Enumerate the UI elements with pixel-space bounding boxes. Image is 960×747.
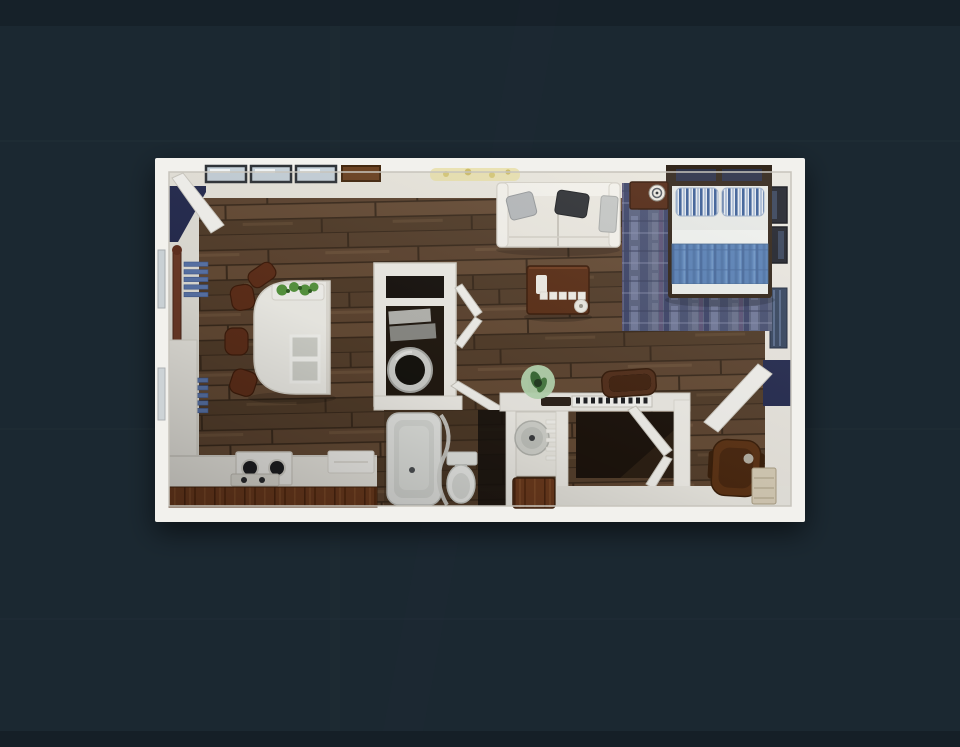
window: [251, 166, 291, 182]
striped-pillow: [676, 188, 718, 216]
sleeping-area: [622, 165, 775, 331]
throw-pillow-dark: [554, 190, 589, 219]
inset-tray: [291, 336, 319, 358]
inset-tray: [291, 360, 319, 382]
upper-shelf-dark: [386, 276, 444, 298]
towel-slat: [546, 429, 556, 433]
coaster: [559, 292, 567, 300]
backdrop-texture-line: [0, 140, 960, 142]
stove: [231, 452, 292, 486]
drain: [409, 467, 415, 473]
sofa-arm: [497, 183, 508, 247]
window: [206, 166, 246, 182]
towel-slat: [546, 438, 556, 442]
apartment-plan: [155, 158, 805, 522]
side-counter: [169, 340, 197, 456]
striped-pillow: [722, 188, 764, 216]
stool: [225, 328, 248, 355]
arm-throw: [599, 195, 618, 232]
backdrop-top-shade: [0, 0, 960, 26]
stove-tray: [231, 474, 279, 486]
backdrop-bottom-shade: [0, 731, 960, 747]
stool: [229, 283, 256, 312]
coffee-table: [527, 266, 589, 314]
shelf-decor-flowers: [430, 168, 520, 181]
entry-doorway-dark: [763, 360, 791, 406]
planter-with-herbs: [272, 282, 324, 300]
screenshot-canvas: [0, 0, 960, 747]
window: [296, 166, 336, 182]
backdrop-texture-line: [0, 618, 960, 620]
sheet-fold: [672, 230, 768, 244]
remote: [536, 275, 547, 294]
vanity: [513, 412, 558, 508]
wall-picture-frame: [342, 166, 380, 181]
towel-slat: [546, 456, 556, 460]
coaster: [569, 292, 577, 300]
coaster: [578, 292, 586, 300]
potted-plant: [521, 365, 555, 399]
small-dresser: [752, 468, 776, 504]
striped-wall-panel: [770, 288, 787, 348]
blanket: [672, 244, 768, 284]
headboard-cushion: [676, 169, 716, 181]
towel-slat: [546, 420, 556, 424]
cabinet-front: [169, 487, 377, 507]
bathroom-shadow-zone: [478, 410, 508, 506]
bed: [666, 165, 772, 298]
sofa: [497, 183, 620, 247]
coaster: [540, 292, 548, 300]
burner-knob: [270, 461, 284, 475]
headboard-cushion: [722, 169, 762, 181]
nook-right-wall: [674, 400, 690, 500]
towel-slat: [546, 447, 556, 451]
side-window-glass: [158, 368, 165, 420]
vanity-cabinet: [513, 478, 555, 508]
washer: [388, 348, 432, 392]
floor-plan-render: [0, 0, 960, 747]
desk-chair: [601, 368, 657, 398]
toilet: [447, 452, 477, 503]
coaster: [550, 292, 558, 300]
bathroom: [374, 396, 568, 508]
desk-mat: [541, 397, 571, 406]
side-window-glass: [158, 250, 165, 308]
bathroom-top-wall: [374, 396, 462, 410]
burner-knob: [243, 461, 257, 475]
foot-band: [672, 284, 768, 294]
bathtub: [387, 413, 449, 505]
nightstand: [630, 182, 668, 209]
island-edge-shade: [326, 281, 330, 394]
